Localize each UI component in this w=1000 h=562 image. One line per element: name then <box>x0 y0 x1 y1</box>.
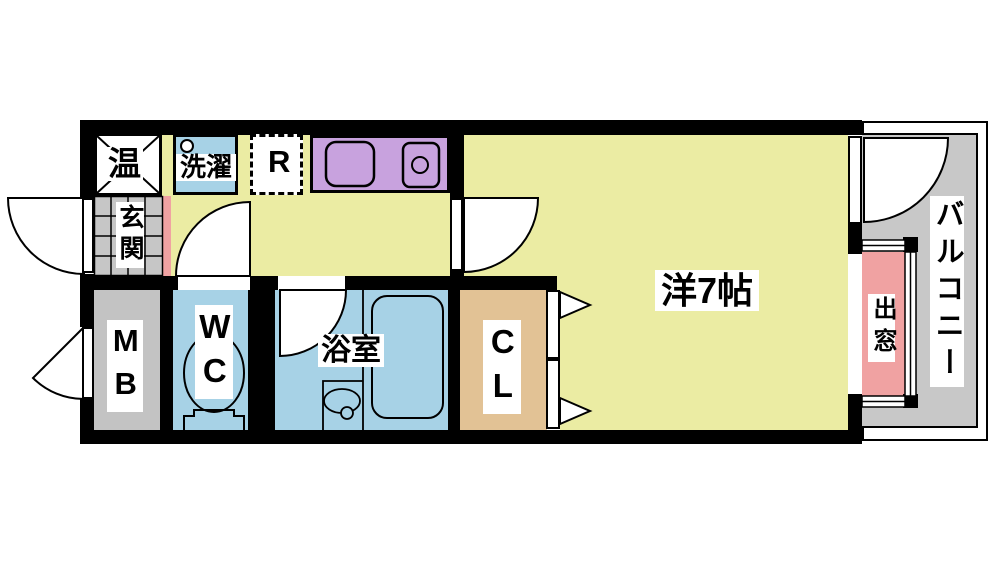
entrance-step-strip <box>163 196 171 276</box>
floor-plan: 温 玄関 洗濯 R MB WC 浴室 CL 洋7帖 出窓 バルコニー <box>0 0 1000 562</box>
bay-window-label: 出窓 <box>868 294 895 362</box>
meter-box-label: MB <box>107 320 143 412</box>
main-room-door-leaf <box>451 199 462 270</box>
toilet-label: WC <box>195 305 233 399</box>
kitchen-counter <box>310 135 450 193</box>
bay-window-corner <box>903 394 918 408</box>
bathroom-label: 浴室 <box>318 334 384 367</box>
refrigerator-label: R <box>264 146 294 178</box>
wall <box>448 290 460 430</box>
balcony-door-leaf <box>849 137 861 223</box>
laundry-label: 洗濯 <box>176 154 236 181</box>
wall <box>80 120 94 198</box>
wall <box>80 430 862 444</box>
balcony-label: バルコニー <box>930 196 964 387</box>
wall <box>80 399 94 444</box>
wall <box>248 290 275 430</box>
entrance-door-arc <box>8 198 84 274</box>
wall <box>80 274 94 327</box>
wall <box>848 394 862 430</box>
entrance-label: 玄関 <box>116 202 144 268</box>
wall <box>848 222 862 254</box>
entrance-door-leaf <box>83 199 93 272</box>
wall <box>80 120 862 135</box>
closet-door-track <box>547 290 560 430</box>
western-room-label: 洋7帖 <box>655 270 759 311</box>
wall <box>450 135 464 198</box>
water-heater-label: 温 <box>106 147 143 181</box>
closet-label: CL <box>483 320 521 414</box>
wall <box>94 276 178 290</box>
meter-box-door-arc <box>33 327 84 399</box>
wall <box>160 290 173 430</box>
wall <box>450 271 464 290</box>
meter-box-door-leaf <box>83 328 93 398</box>
bay-window-corner <box>903 237 918 252</box>
wall <box>250 276 278 290</box>
